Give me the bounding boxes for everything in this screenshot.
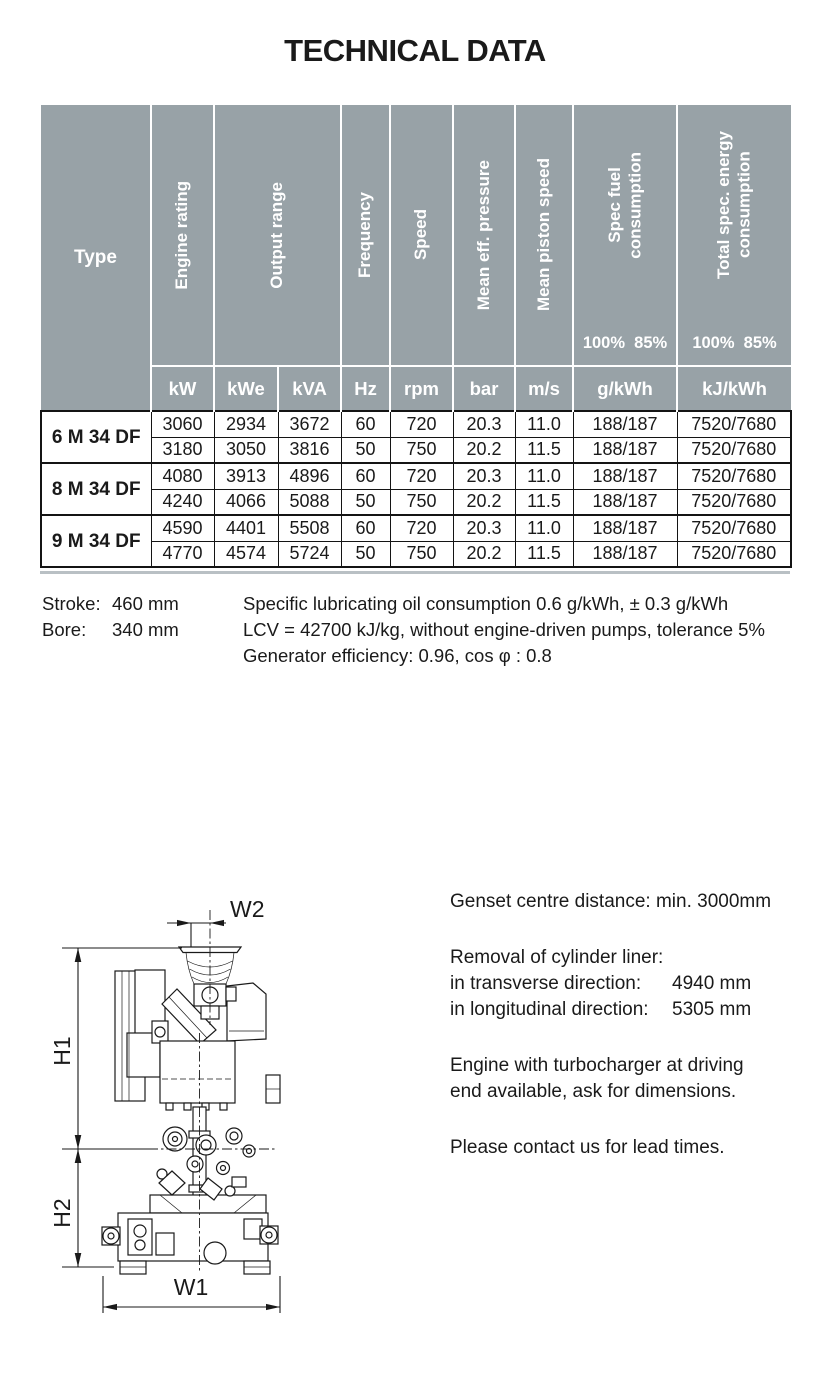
data-cell: 3672	[278, 411, 341, 437]
col-header-frequency: Frequency	[341, 105, 390, 366]
installation-info: Genset centre distance: min. 3000mm Remo…	[450, 889, 800, 1161]
stroke-note: Stroke:460 mm	[42, 591, 179, 617]
technical-data-table-wrap: Type Engine rating Output range Frequenc…	[40, 105, 790, 568]
data-cell: 188/187	[573, 411, 677, 437]
dim-label-w1: W1	[174, 1274, 209, 1300]
data-cell: 4770	[151, 541, 214, 567]
data-cell: 60	[341, 515, 390, 541]
units-row: kW kWe kVA Hz rpm bar m/s g/kWh kJ/kWh	[41, 366, 791, 411]
data-cell: 720	[390, 515, 453, 541]
engine-geometry-notes: Stroke:460 mm Bore:340 mm	[42, 591, 179, 643]
unit-cell: g/kWh	[573, 366, 677, 411]
data-cell: 7520/7680	[677, 489, 791, 515]
data-cell: 5508	[278, 515, 341, 541]
liner-removal-title: Removal of cylinder liner:	[450, 945, 800, 971]
data-cell: 7520/7680	[677, 411, 791, 437]
liner-removal-longitudinal: in longitudinal direction:5305 mm	[450, 997, 800, 1023]
data-cell: 11.5	[515, 541, 573, 567]
data-cell: 20.3	[453, 515, 515, 541]
data-cell: 11.0	[515, 411, 573, 437]
data-cell: 50	[341, 541, 390, 567]
data-cell: 2934	[214, 411, 278, 437]
data-cell: 7520/7680	[677, 515, 791, 541]
note-line: Specific lubricating oil consumption 0.6…	[243, 591, 765, 617]
table-row: 8 M 34 DF 4080 3913 4896 60 720 20.3 11.…	[41, 463, 791, 489]
stroke-value: 460 mm	[112, 593, 179, 614]
col-header-mean-eff-pressure: Mean eff. pressure	[453, 105, 515, 366]
data-cell: 4590	[151, 515, 214, 541]
type-cell: 8 M 34 DF	[41, 463, 151, 515]
data-cell: 3180	[151, 437, 214, 463]
unit-cell: m/s	[515, 366, 573, 411]
dim-label-h1: H1	[49, 1036, 75, 1065]
data-cell: 3913	[214, 463, 278, 489]
unit-cell: kW	[151, 366, 214, 411]
data-cell: 4896	[278, 463, 341, 489]
data-cell: 20.2	[453, 541, 515, 567]
data-cell: 7520/7680	[677, 541, 791, 567]
liner-removal-transverse: in transverse direction:4940 mm	[450, 971, 800, 997]
table-row: 4240 4066 5088 50 750 20.2 11.5 188/187 …	[41, 489, 791, 515]
data-cell: 7520/7680	[677, 437, 791, 463]
data-cell: 188/187	[573, 489, 677, 515]
data-cell: 188/187	[573, 437, 677, 463]
unit-cell: rpm	[390, 366, 453, 411]
col-header-engine-rating: Engine rating	[151, 105, 214, 366]
longitudinal-value: 5305 mm	[672, 999, 751, 1020]
data-cell: 3060	[151, 411, 214, 437]
data-cell: 7520/7680	[677, 463, 791, 489]
bore-note: Bore:340 mm	[42, 617, 179, 643]
col-header-total-spec-energy: Total spec. energy consumption 100% 85%	[677, 105, 791, 366]
col-header-type-label: Type	[74, 247, 117, 268]
header-row: Type Engine rating Output range Frequenc…	[41, 105, 791, 366]
col-header-mean-piston-speed: Mean piston speed	[515, 105, 573, 366]
col-header-output-range: Output range	[214, 105, 341, 366]
type-cell: 9 M 34 DF	[41, 515, 151, 567]
col-header-speed: Speed	[390, 105, 453, 366]
data-cell: 750	[390, 541, 453, 567]
data-cell: 20.3	[453, 411, 515, 437]
turbocharger-note-line1: Engine with turbocharger at driving	[450, 1053, 800, 1079]
bore-label: Bore:	[42, 617, 112, 643]
note-line: Generator efficiency: 0.96, cos φ : 0.8	[243, 643, 765, 669]
consumption-notes: Specific lubricating oil consumption 0.6…	[243, 591, 765, 669]
transverse-label: in transverse direction:	[450, 971, 672, 997]
data-cell: 4066	[214, 489, 278, 515]
lead-times-note: Please contact us for lead times.	[450, 1135, 800, 1161]
unit-cell: kVA	[278, 366, 341, 411]
data-cell: 50	[341, 489, 390, 515]
table-row: 3180 3050 3816 50 750 20.2 11.5 188/187 …	[41, 437, 791, 463]
data-cell: 720	[390, 411, 453, 437]
data-cell: 188/187	[573, 515, 677, 541]
unit-cell: bar	[453, 366, 515, 411]
data-cell: 60	[341, 411, 390, 437]
turbocharger-note-line2: end available, ask for dimensions.	[450, 1079, 800, 1105]
data-cell: 5088	[278, 489, 341, 515]
type-cell: 6 M 34 DF	[41, 411, 151, 463]
table-row: 6 M 34 DF 3060 2934 3672 60 720 20.3 11.…	[41, 411, 791, 437]
data-cell: 11.5	[515, 489, 573, 515]
technical-data-table: Type Engine rating Output range Frequenc…	[40, 105, 792, 568]
data-cell: 20.2	[453, 437, 515, 463]
longitudinal-label: in longitudinal direction:	[450, 997, 672, 1023]
table-row: 4770 4574 5724 50 750 20.2 11.5 188/187 …	[41, 541, 791, 567]
data-cell: 750	[390, 437, 453, 463]
data-cell: 188/187	[573, 541, 677, 567]
data-cell: 11.5	[515, 437, 573, 463]
datasheet-page: TECHNICAL DATA Type Engine rating Output…	[0, 0, 830, 1381]
engine-dimension-drawing: W2 H1 H2 W1	[48, 883, 384, 1343]
data-cell: 50	[341, 437, 390, 463]
data-cell: 3050	[214, 437, 278, 463]
stroke-label: Stroke:	[42, 591, 112, 617]
load-points-label: 100% 85%	[678, 334, 791, 353]
data-cell: 4240	[151, 489, 214, 515]
data-cell: 11.0	[515, 515, 573, 541]
col-header-spec-fuel-consumption: Spec fuel consumption 100% 85%	[573, 105, 677, 366]
data-cell: 20.3	[453, 463, 515, 489]
data-cell: 11.0	[515, 463, 573, 489]
note-line: LCV = 42700 kJ/kg, without engine-driven…	[243, 617, 765, 643]
data-cell: 4080	[151, 463, 214, 489]
dim-label-w2: W2	[230, 896, 265, 922]
data-cell: 3816	[278, 437, 341, 463]
data-cell: 4401	[214, 515, 278, 541]
data-cell: 4574	[214, 541, 278, 567]
genset-distance-note: Genset centre distance: min. 3000mm	[450, 889, 800, 915]
data-cell: 720	[390, 463, 453, 489]
bore-value: 340 mm	[112, 619, 179, 640]
data-cell: 60	[341, 463, 390, 489]
transverse-value: 4940 mm	[672, 973, 751, 994]
engine-outline-drawing: W2 H1 H2 W1	[48, 883, 384, 1343]
data-cell: 188/187	[573, 463, 677, 489]
dim-label-h2: H2	[49, 1198, 75, 1227]
table-row: 9 M 34 DF 4590 4401 5508 60 720 20.3 11.…	[41, 515, 791, 541]
data-cell: 750	[390, 489, 453, 515]
page-title: TECHNICAL DATA	[0, 33, 830, 69]
load-points-label: 100% 85%	[574, 334, 676, 353]
unit-cell: kWe	[214, 366, 278, 411]
col-header-type: Type	[41, 105, 151, 411]
data-cell: 20.2	[453, 489, 515, 515]
unit-cell: kJ/kWh	[677, 366, 791, 411]
data-cell: 5724	[278, 541, 341, 567]
unit-cell: Hz	[341, 366, 390, 411]
